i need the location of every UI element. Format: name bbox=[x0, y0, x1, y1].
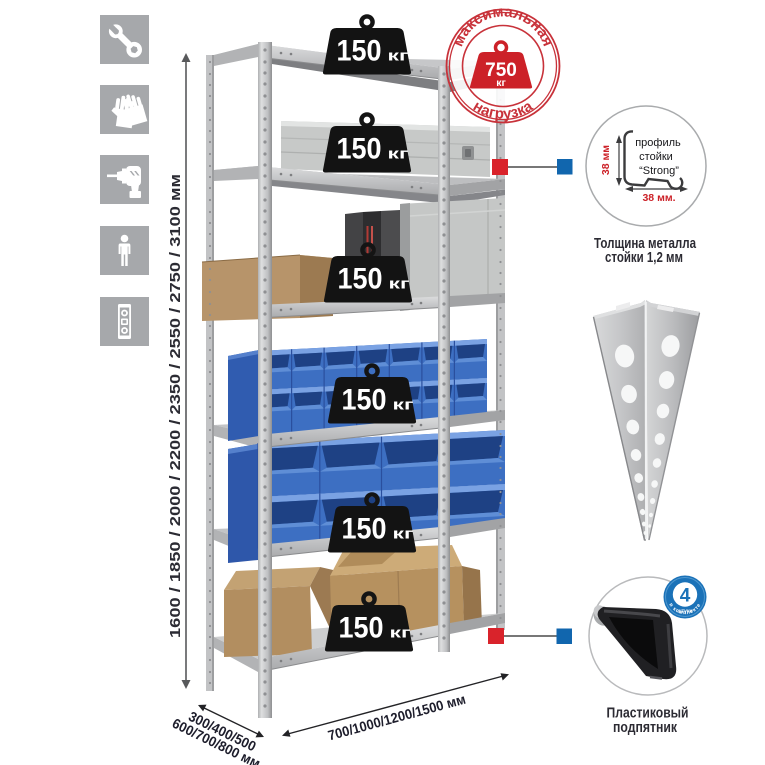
svg-text:подпятник: подпятник bbox=[613, 720, 678, 736]
svg-text:кг: кг bbox=[393, 397, 414, 414]
svg-text:1600 / 1850 / 2000 / 2200 / 23: 1600 / 1850 / 2000 / 2200 / 2350 / 2550 … bbox=[167, 174, 184, 638]
svg-text:4: 4 bbox=[680, 586, 691, 607]
svg-text:стойки: стойки bbox=[639, 151, 673, 163]
svg-text:“Strong”: “Strong” bbox=[639, 165, 679, 177]
svg-text:профиль: профиль bbox=[635, 137, 681, 149]
svg-text:38 мм: 38 мм bbox=[600, 145, 612, 175]
svg-text:кг: кг bbox=[389, 276, 410, 293]
svg-text:кг: кг bbox=[496, 77, 506, 89]
svg-text:150: 150 bbox=[339, 612, 384, 645]
svg-text:150: 150 bbox=[337, 133, 382, 166]
svg-text:кг: кг bbox=[388, 146, 409, 163]
svg-text:кг: кг bbox=[390, 625, 411, 642]
svg-text:кг: кг bbox=[393, 526, 414, 543]
svg-text:кг: кг bbox=[388, 48, 409, 65]
svg-text:150: 150 bbox=[337, 35, 382, 68]
svg-text:700/1000/1200/1500 мм: 700/1000/1200/1500 мм bbox=[326, 691, 467, 744]
svg-text:150: 150 bbox=[342, 513, 387, 546]
svg-text:38 мм.: 38 мм. bbox=[642, 192, 675, 204]
svg-text:150: 150 bbox=[338, 263, 383, 296]
svg-text:150: 150 bbox=[342, 384, 387, 417]
svg-text:стойки 1,2 мм: стойки 1,2 мм bbox=[605, 250, 683, 266]
